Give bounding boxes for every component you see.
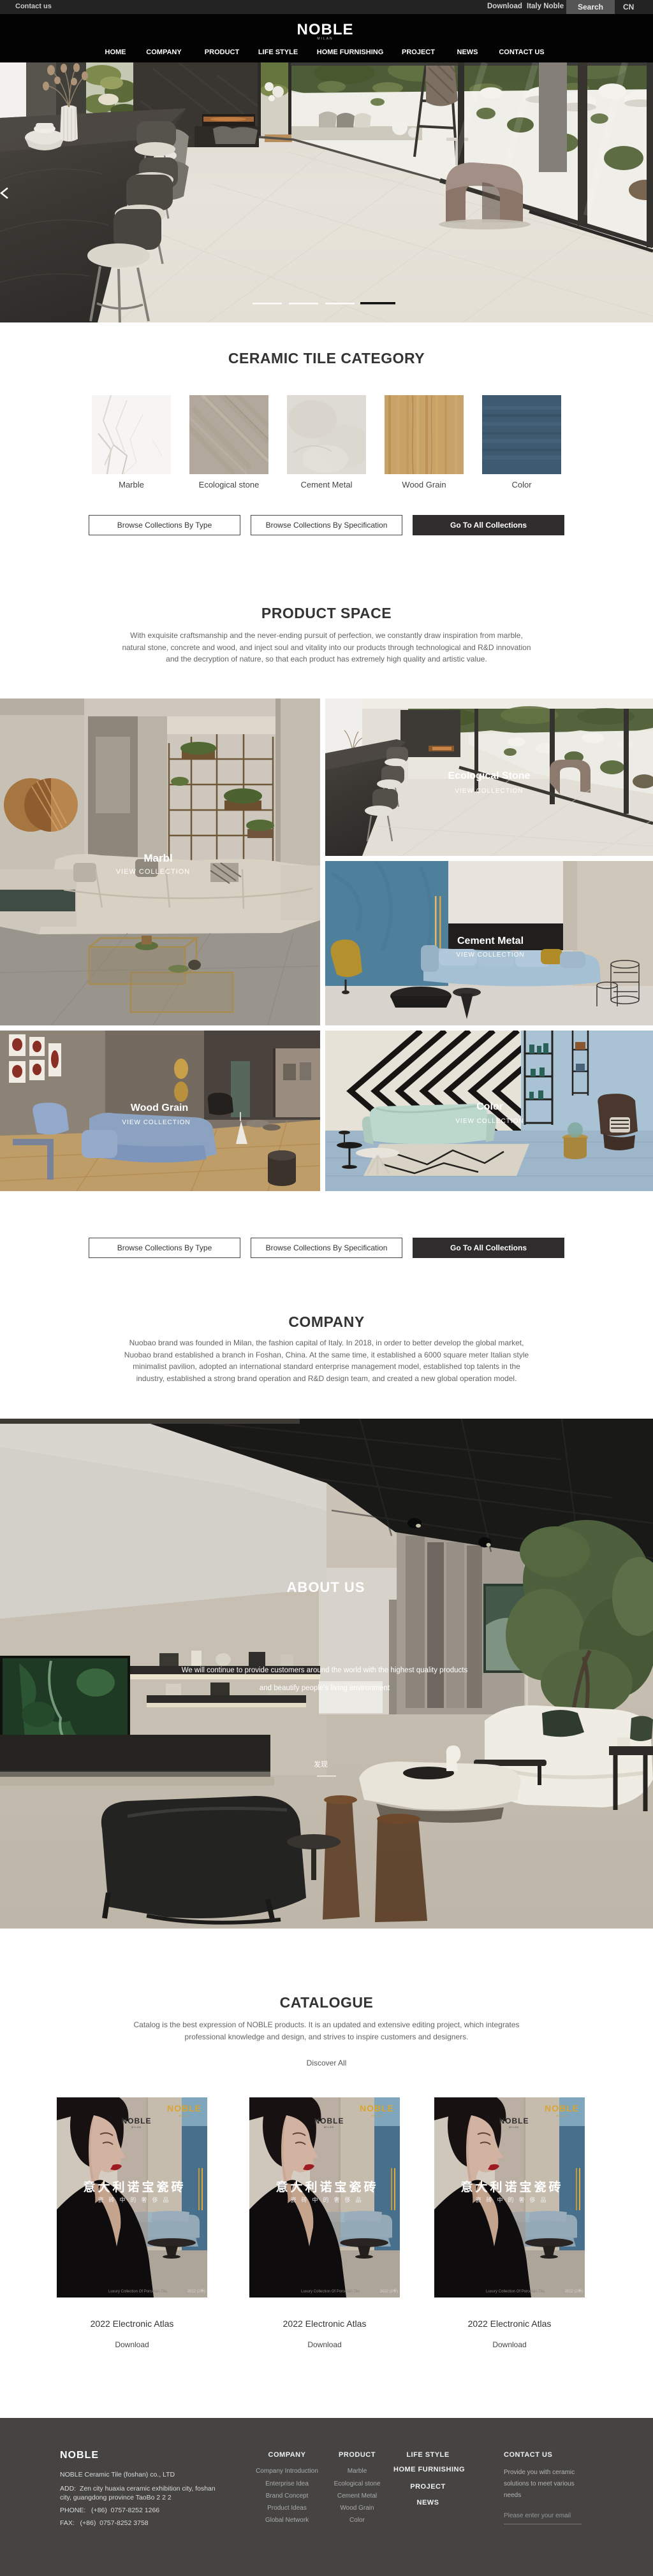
svg-text:Cement Metal: Cement Metal bbox=[457, 936, 524, 946]
svg-text:VIEW COLLECTION: VIEW COLLECTION bbox=[455, 788, 523, 795]
svg-text:Marbl: Marbl bbox=[143, 852, 172, 864]
svg-text:VIEW COLLECTION: VIEW COLLECTION bbox=[455, 1118, 524, 1125]
svg-text:发现: 发现 bbox=[314, 1760, 328, 1769]
svg-text:Color: Color bbox=[476, 1101, 503, 1112]
svg-text:and beautify people's living e: and beautify people's living environment bbox=[260, 1684, 390, 1692]
svg-text:VIEW COLLECTION: VIEW COLLECTION bbox=[122, 1119, 190, 1126]
svg-text:VIEW COLLECTION: VIEW COLLECTION bbox=[456, 952, 524, 959]
svg-text:Wood Grain: Wood Grain bbox=[131, 1103, 188, 1113]
svg-text:ABOUT US: ABOUT US bbox=[287, 1579, 365, 1595]
svg-text:VIEW COLLECTION: VIEW COLLECTION bbox=[116, 868, 190, 876]
svg-text:Ecological Stone: Ecological Stone bbox=[448, 771, 531, 781]
svg-text:We will continue to provide cu: We will continue to provide customers ar… bbox=[182, 1667, 468, 1674]
